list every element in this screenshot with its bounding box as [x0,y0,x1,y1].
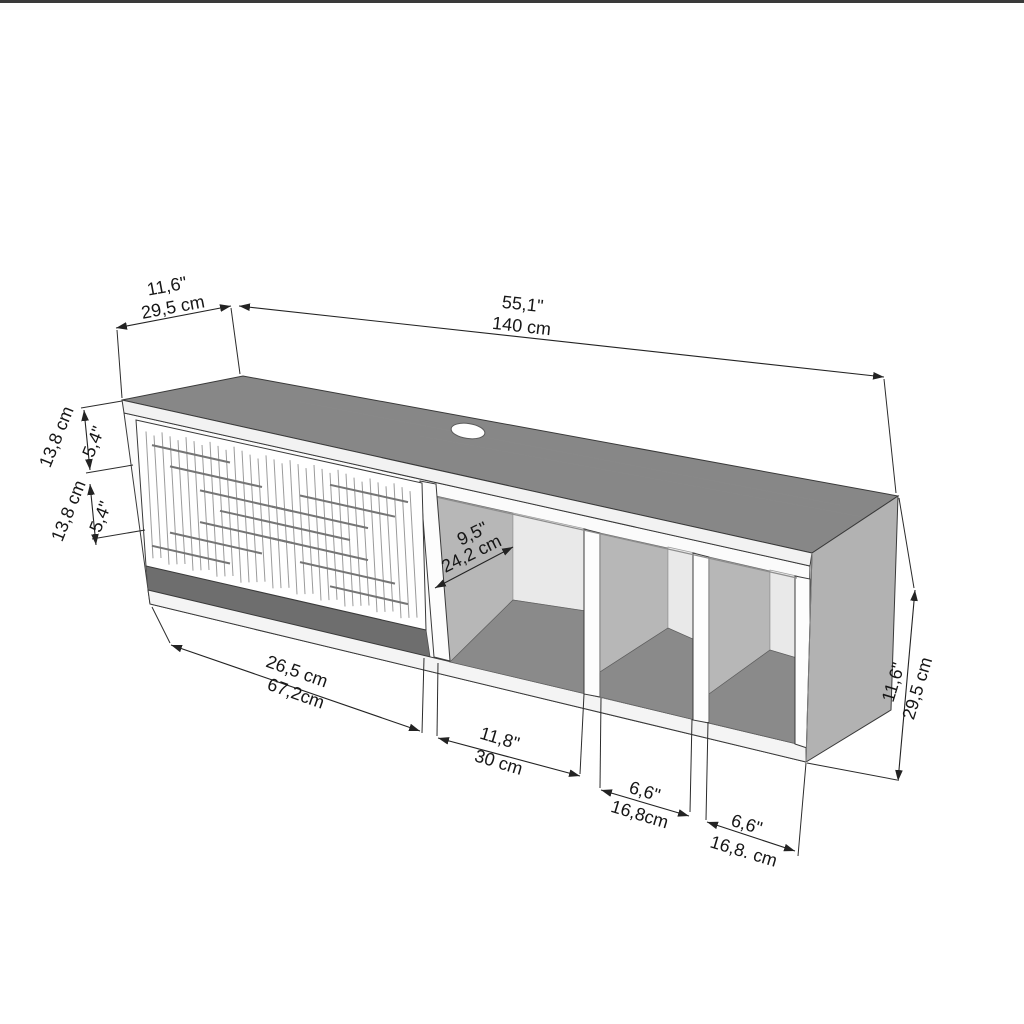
dim-left-upper-inches: 5,4" [78,423,108,460]
ext-line [884,379,896,493]
ext-line [86,465,133,473]
cabinet-body [122,376,898,762]
dim-top-width-line [239,306,884,377]
ext-line [807,763,897,780]
dim-bottom-shelf3-cm: 16,8. cm [708,832,780,871]
ext-line [231,308,240,374]
ext-line [152,607,170,643]
dim-left-lower-inches: 5,4" [85,498,115,535]
tv-stand-drawing: 11,6" 29,5 cm 55,1" 140 cm 13,8 cm 5,4" … [0,0,1024,1024]
divider-2-front-edge [693,553,709,723]
ext-line [81,401,122,408]
compartment-3-back-panel [770,570,797,658]
top-border-line [0,0,1024,3]
ext-line [117,330,122,398]
dim-top-width-inches: 55,1" [501,292,544,316]
dim-left-lower-cm: 13,8 cm [47,477,90,544]
dim-bottom-shelf3-inches: 6,6" [729,810,765,838]
compartment-2-back-panel [668,547,695,640]
ext-line [798,763,806,856]
furniture-dimension-diagram: 11,6" 29,5 cm 55,1" 140 cm 13,8 cm 5,4" … [0,0,1024,1024]
dim-left-upper-cm: 13,8 cm [35,403,78,470]
divider-1-front-edge [584,529,600,697]
ext-line [899,498,914,588]
dim-bottom-middle-cm: 30 cm [472,746,525,779]
ext-line [437,663,438,736]
